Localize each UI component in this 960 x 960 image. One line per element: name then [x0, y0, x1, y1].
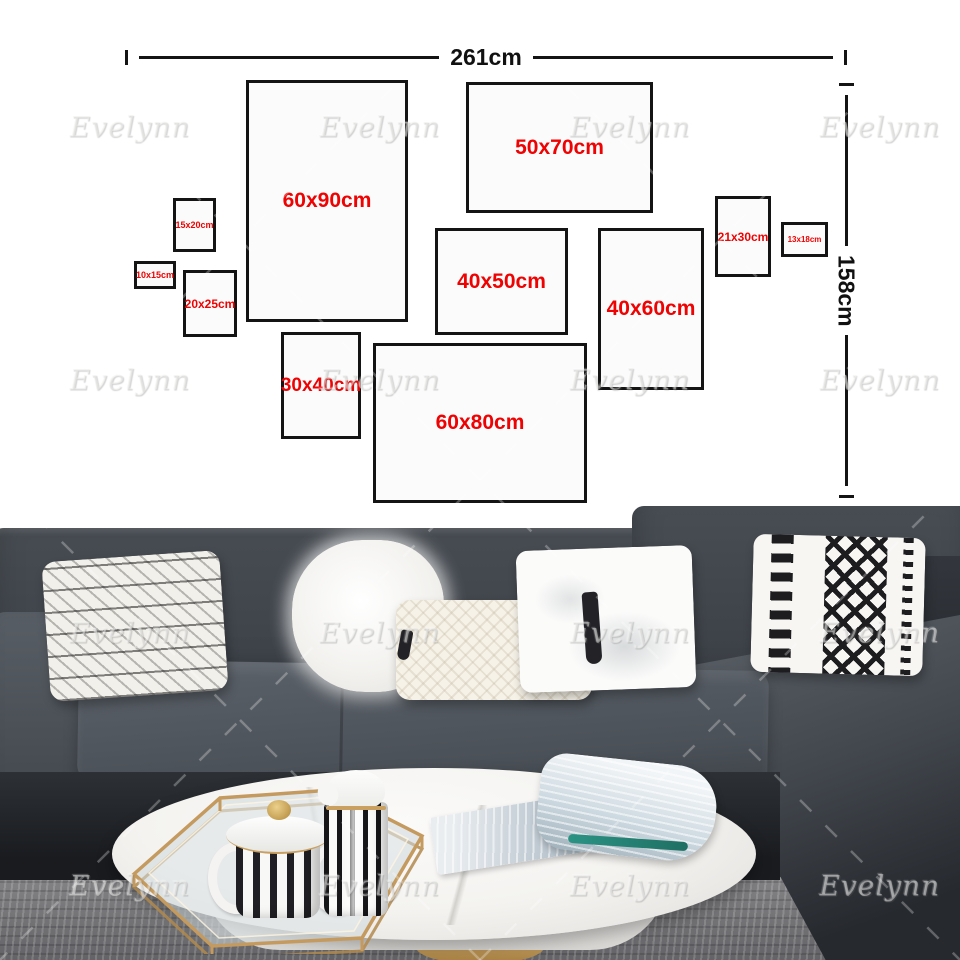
frame-size-label: 21x30cm [718, 230, 769, 244]
frame-size-label: 10x15cm [136, 270, 174, 280]
frame-size-label: 30x40cm [281, 375, 361, 397]
dimension-line-segment [845, 335, 848, 486]
pitcher-gold-band [326, 806, 386, 810]
pot-lid [226, 816, 330, 854]
frame-60x90cm: 60x90cm [246, 80, 408, 322]
frame-size-label: 40x50cm [457, 270, 546, 294]
frame-30x40cm: 30x40cm [281, 332, 361, 439]
wall-height-label: 158cm [835, 255, 858, 327]
pitcher-striped-body [324, 802, 388, 916]
watermark-text: Evelynn [70, 364, 191, 397]
watermark-text: Evelynn [70, 111, 191, 144]
frame-20x25cm: 20x25cm [183, 270, 237, 337]
frame-13x18cm: 13x18cm [781, 222, 828, 257]
dimension-line-segment [533, 56, 833, 59]
dimension-end-tick [839, 83, 854, 86]
magazine-rolled-cover [533, 751, 720, 865]
frame-50x70cm: 50x70cm [466, 82, 653, 213]
wall-width-label: 261cm [450, 46, 522, 69]
frame-size-label: 13x18cm [788, 235, 822, 244]
frame-60x80cm: 60x80cm [373, 343, 587, 503]
width-dimension-line: 261cm [125, 46, 847, 68]
pillow-tribal-pattern [41, 550, 228, 702]
frame-size-label: 50x70cm [515, 136, 604, 160]
height-dimension-line: 158cm [834, 83, 858, 498]
dimension-line-segment [139, 56, 439, 59]
frame-10x15cm: 10x15cm [134, 261, 176, 289]
pot-gold-knob [267, 800, 291, 820]
pillow-botanical-print [516, 545, 697, 693]
frame-size-label: 60x90cm [283, 189, 372, 213]
dimension-line-segment [845, 95, 848, 246]
frame-size-label: 15x20cm [175, 220, 213, 230]
frame-size-label: 20x25cm [185, 297, 236, 311]
frame-size-label: 60x80cm [436, 411, 525, 435]
dimension-end-tick [839, 495, 854, 498]
pillow-aztec-pattern [750, 534, 926, 676]
striped-sugar-pot [226, 800, 330, 918]
frame-40x50cm: 40x50cm [435, 228, 568, 335]
frame-40x60cm: 40x60cm [598, 228, 704, 390]
dimension-end-tick [844, 50, 847, 65]
frame-size-label: 40x60cm [607, 297, 696, 321]
frame-21x30cm: 21x30cm [715, 196, 771, 277]
product-image: 60x90cm50x70cm15x20cm10x15cm20x25cm40x50… [0, 0, 960, 960]
striped-tea-pitcher [322, 766, 392, 918]
dimension-end-tick [125, 50, 128, 65]
frame-15x20cm: 15x20cm [173, 198, 216, 252]
